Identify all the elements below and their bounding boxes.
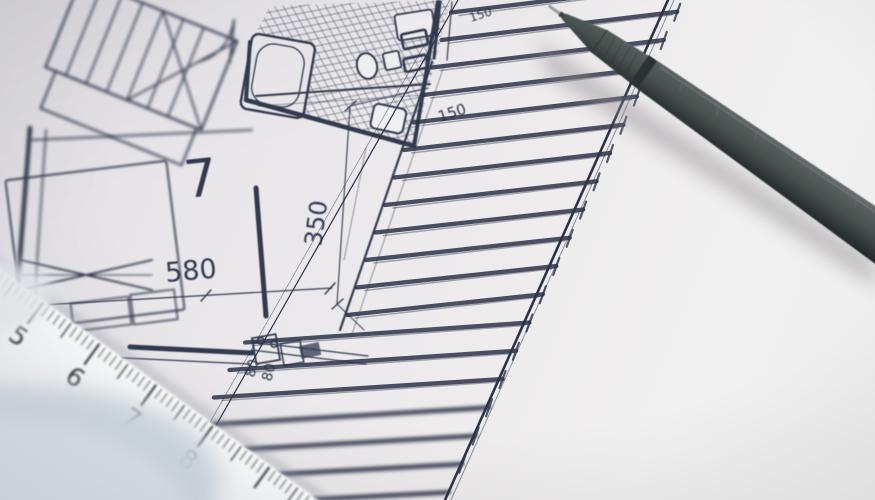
staircase-drawing [30,0,237,167]
bottom-wall [130,347,252,353]
pen-shadow [536,40,875,290]
dim-line-350 [337,106,350,304]
step-rect [130,289,177,324]
dimension-580: 580 [164,254,218,289]
door-jamb [280,340,304,365]
toilet-tank [383,51,402,71]
bathroom [240,0,452,146]
door-jamb-dark [299,342,321,359]
room-top-wall [32,130,252,140]
stair-diagonal [127,11,237,130]
blueprint-photo: 7 580 350 150 150 80 80 5 6 7 8 [0,0,875,500]
blueprint-scene: 7 580 350 150 150 80 80 5 6 7 8 [0,0,875,500]
room-number: 7 [181,148,220,211]
sink [370,103,407,134]
wall-stub [256,188,266,316]
stair-landing [41,71,197,165]
dimension-350: 350 [299,199,333,248]
